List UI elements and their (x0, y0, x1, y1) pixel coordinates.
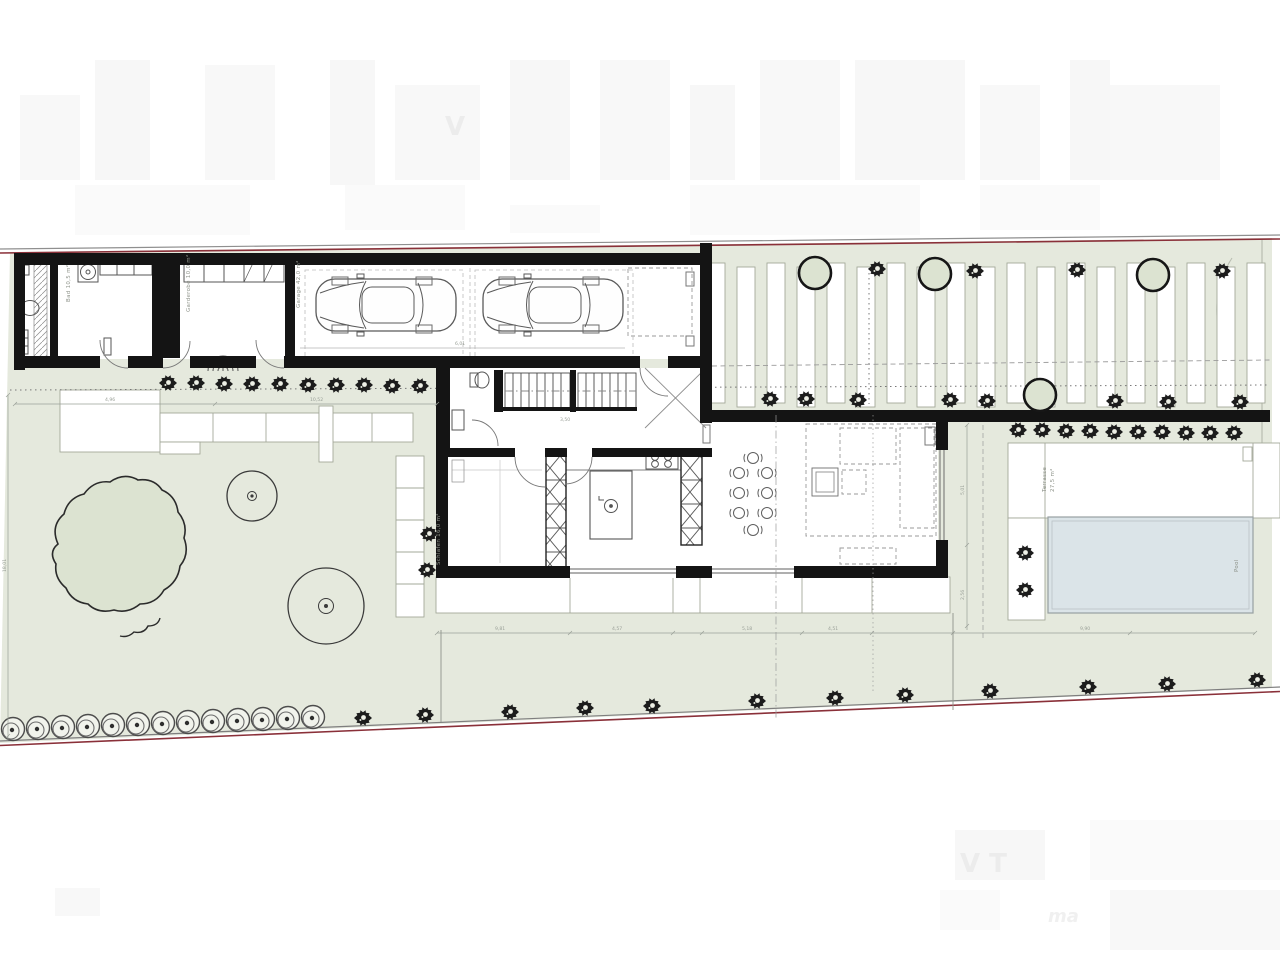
round-tree (799, 257, 831, 289)
south-wall-seg-3 (190, 356, 256, 368)
label-bath: Bad 10,5 m² (65, 265, 72, 302)
dim-terrace-1: 9,81 (495, 626, 505, 632)
label-bedroom: Schlafen 16,0 m² (435, 513, 442, 565)
driveway-wall (700, 410, 1270, 422)
pool (1048, 517, 1253, 613)
south-wall-seg-2 (128, 356, 163, 368)
dim-terrace-4: 4,51 (828, 626, 838, 632)
label-garderobe: Garderobe 10,0 m² (185, 255, 192, 312)
bedroom-south-wall (436, 566, 570, 578)
dim-walk-1: 4,96 (105, 397, 115, 403)
terrace-fixture (1243, 447, 1252, 461)
hedge-bush (252, 708, 275, 731)
paver-strip (1007, 263, 1025, 403)
planter-box (319, 406, 333, 462)
wall-bath-garderobe (152, 264, 180, 358)
dim-garage: 6,01 (455, 341, 465, 347)
round-tree (1137, 259, 1169, 291)
paver-strip (737, 267, 755, 407)
hedge-bush (77, 715, 100, 738)
hedge-bush (202, 710, 225, 733)
dim-terrace-2: 4,57 (612, 626, 622, 632)
living-south-wall (800, 566, 948, 578)
dim-stairs: 3,50 (560, 417, 570, 423)
hedge-bush (302, 706, 325, 729)
west-wall-upper (14, 253, 25, 370)
hedge-bush (227, 709, 250, 732)
living-east-post-1 (936, 412, 948, 450)
paver-strip (767, 263, 785, 403)
hedge-bush (2, 718, 25, 741)
paver-strip (1217, 267, 1235, 407)
hedge-bush (152, 712, 175, 735)
living-floor (700, 421, 938, 578)
wall-garderobe-garage (285, 264, 295, 358)
paver-strip (827, 263, 845, 403)
floor-plan-canvas: V V T ma (0, 0, 1280, 960)
circle-tree-small-dot (250, 494, 253, 497)
walkway-slabs (160, 413, 413, 442)
bedroom-wardrobe (546, 452, 566, 573)
paver-strip (887, 263, 905, 403)
wall-wc-bath (50, 264, 58, 358)
south-wall-seg-1 (14, 356, 100, 368)
paver-strip (1187, 263, 1205, 403)
main-north-wall-2 (545, 448, 567, 457)
dim-vert-1: 5,01 (960, 485, 966, 495)
label-terrace: Terrasse (1042, 467, 1048, 493)
pool-side-path (1008, 518, 1045, 620)
hedge-bush (277, 707, 300, 730)
living-east-post-2 (936, 540, 948, 578)
hedge-bush (27, 717, 50, 740)
paver-strip (1067, 263, 1085, 403)
round-tree (919, 258, 951, 290)
label-pool: Pool (1234, 559, 1240, 572)
paver-strip (1247, 263, 1265, 403)
east-wall-garage (700, 243, 712, 423)
hedge-bush (127, 713, 150, 736)
north-wall (14, 253, 712, 265)
shaft-hatch (34, 258, 47, 358)
round-tree (1024, 379, 1056, 411)
walkway-step (160, 442, 200, 454)
dim-terrace-3: 5,18 (742, 626, 752, 632)
dim-vert-2: 2,56 (960, 590, 966, 600)
watermark-letter: V (445, 112, 465, 142)
side-path-slabs (396, 456, 424, 617)
kitchen-south-post (676, 566, 712, 578)
south-wall-seg-4 (668, 356, 712, 368)
circle-tree-large-dot (324, 604, 328, 608)
paver-strip (857, 267, 875, 407)
pool-terrace (1008, 443, 1280, 518)
dim-terrace-5: 9,90 (1080, 626, 1090, 632)
car-2 (483, 274, 623, 336)
stairs-stringer (503, 407, 637, 411)
stairs-divider (570, 370, 576, 412)
dim-walk-2: 10,52 (310, 397, 323, 403)
hedge-bush (102, 714, 125, 737)
label-garage: Garage 42,0 m² (295, 260, 302, 308)
site-plan-drawing: V V T ma (0, 0, 1280, 960)
label-terrace-area: 27,5 m² (1049, 468, 1056, 492)
main-north-wall-3 (592, 448, 712, 457)
watermark-letters: V T (960, 849, 1007, 879)
south-wall-garage (284, 356, 640, 368)
dim-left-vert: 18,01 (2, 559, 8, 572)
drive-bottom-trees (1024, 379, 1056, 411)
wc-stairs-wall (494, 370, 503, 412)
core-west-wall (436, 362, 450, 454)
hedge-bush (52, 716, 75, 739)
kitchen-tall-cabinets (681, 452, 702, 545)
hedge-bush (177, 711, 200, 734)
car-1 (316, 274, 456, 336)
paver-strip (947, 263, 965, 403)
watermark-letters-2: ma (1048, 906, 1079, 927)
